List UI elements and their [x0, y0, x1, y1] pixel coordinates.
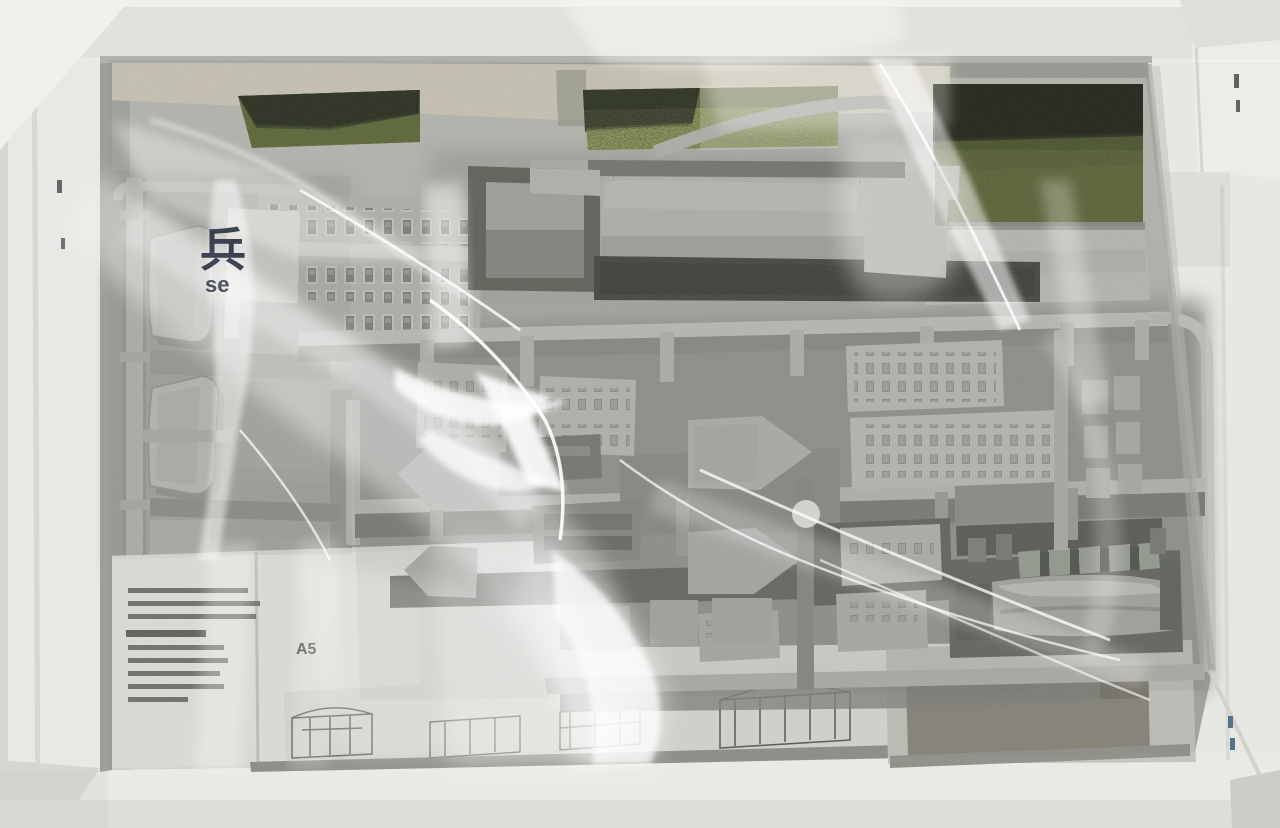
svg-text:se: se: [205, 272, 229, 297]
svg-text:兵: 兵: [200, 224, 246, 276]
